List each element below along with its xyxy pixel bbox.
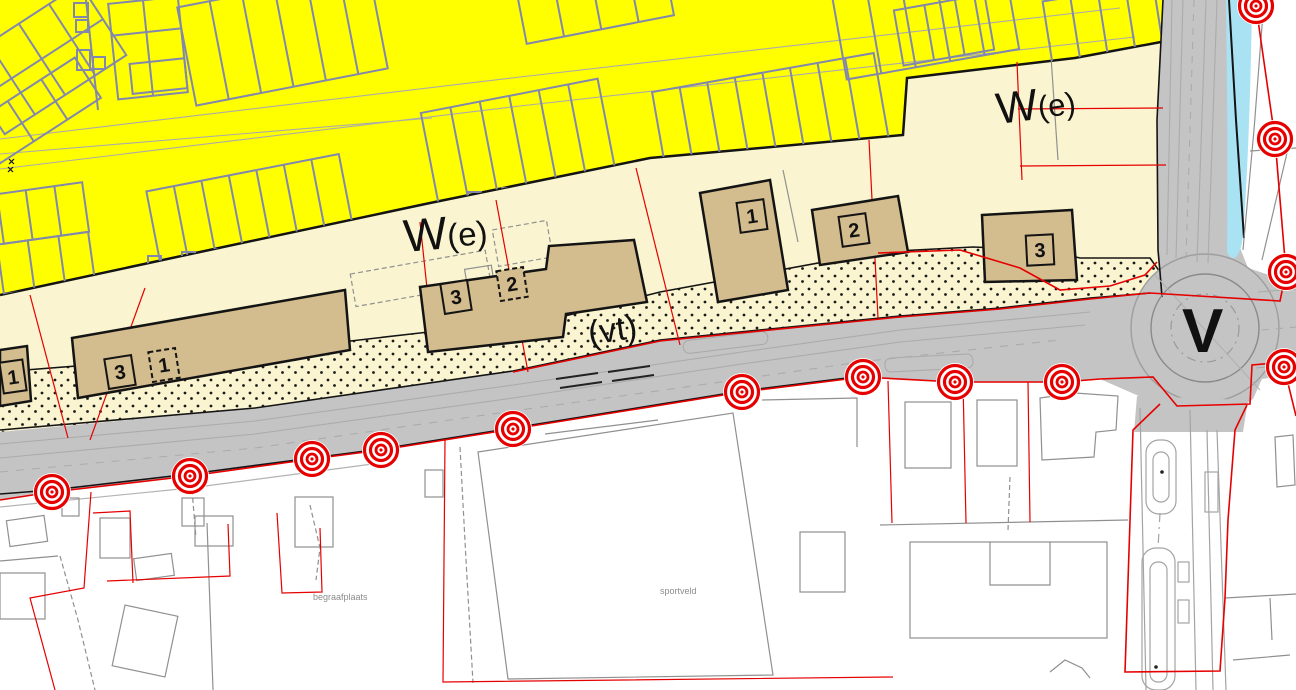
sports-field-label: sportveld xyxy=(660,586,697,596)
svg-text:3: 3 xyxy=(1034,240,1046,263)
zone-label-v: V xyxy=(1182,297,1223,366)
svg-text:(vt): (vt) xyxy=(585,308,639,353)
zoning-map-svg: begraafplaats sportveld 1 3 1 3 2 1 xyxy=(0,0,1296,690)
cemetery-label: begraafplaats xyxy=(313,592,368,602)
zone-label-vt: (vt) xyxy=(585,308,639,353)
zoning-map-canvas[interactable]: begraafplaats sportveld 1 3 1 3 2 1 xyxy=(0,0,1296,690)
roundabout-south-stub xyxy=(1134,396,1248,432)
